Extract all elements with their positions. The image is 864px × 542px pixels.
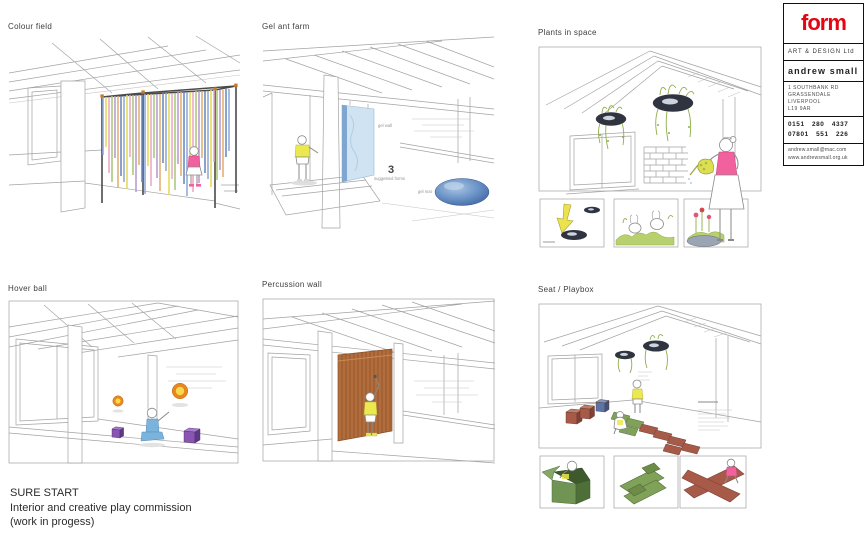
plants-in-space-illustration	[538, 41, 770, 263]
form-logo: form	[784, 4, 863, 43]
gel-wall-label: gel wall	[378, 123, 392, 128]
panel-title: Seat / Playbox	[538, 285, 770, 295]
count-label: 3	[388, 164, 394, 176]
project-caption: SURE START Interior and creative play co…	[10, 486, 192, 530]
phone-block: 0151 280 4337 07801 551 226	[784, 116, 863, 143]
hanging-planters	[615, 335, 669, 373]
address-line: L19 9AR	[788, 106, 859, 113]
tile-path	[611, 412, 700, 455]
colour-field-illustration	[8, 35, 240, 235]
thumbnail-playbox	[540, 456, 604, 508]
panel-percussion-wall: Percussion wall	[262, 280, 498, 467]
address-line: 1 SOUTHBANK RD	[788, 85, 859, 92]
gel-mat-label: gel mat	[418, 189, 433, 194]
panel-title: Percussion wall	[262, 280, 498, 290]
gel-ant-farm-illustration: gel wall 3 suggested forms gel mat	[262, 35, 494, 230]
gel-mat	[435, 179, 489, 206]
watering-can	[688, 159, 713, 184]
address-line: LIVERPOOL	[788, 99, 859, 106]
phone-number: 07801 551 226	[788, 130, 859, 140]
project-subtitle: Interior and creative play commission	[10, 501, 192, 516]
seat-playbox-illustration	[538, 298, 770, 522]
designer-name: andrew small	[784, 60, 863, 81]
child-figure	[291, 136, 318, 186]
suggested-forms-label: suggested forms	[374, 176, 405, 181]
room-sketch	[9, 303, 238, 463]
project-status: (work in progess)	[10, 515, 192, 530]
contact-block: andrew.small@mac.com www.andrewsmall.org…	[784, 143, 863, 165]
child-standing-figure	[632, 380, 643, 413]
gel-wall	[342, 101, 374, 182]
thumbnail-drop	[540, 199, 604, 247]
thumbnail-unfolded-box	[614, 456, 678, 508]
thumbnail-tile-cross	[680, 456, 746, 508]
panel-title: Hover ball	[8, 284, 240, 294]
panel-title: Gel ant farm	[262, 22, 494, 32]
thumbnail-rabbits	[614, 199, 678, 247]
percussion-wall-illustration	[262, 293, 496, 467]
phone-number: 0151 280 4337	[788, 120, 859, 130]
address-line: GRASSENDALE	[788, 92, 859, 99]
percussion-panel	[338, 349, 392, 441]
email-address: andrew.small@mac.com	[788, 147, 859, 155]
logo-card: form ART & DESIGN Ltd andrew small 1 SOU…	[783, 3, 864, 166]
hover-ball-illustration	[8, 297, 240, 465]
address-block: 1 SOUTHBANK RD GRASSENDALE LIVERPOOL L19…	[784, 81, 863, 116]
panel-plants-in-space: Plants in space	[538, 28, 770, 263]
child-sitting-figure	[139, 408, 169, 447]
brick-wall	[644, 147, 688, 183]
logo-subtitle: ART & DESIGN Ltd	[784, 43, 863, 60]
panel-seat-playbox: Seat / Playbox	[538, 285, 770, 522]
panel-hover-ball: Hover ball	[8, 284, 240, 465]
panel-gel-ant-farm: Gel ant farm	[262, 22, 494, 230]
ribbon-canopy	[100, 84, 237, 208]
hanging-planter-small	[596, 106, 626, 149]
project-title: SURE START	[10, 486, 192, 501]
panel-colour-field: Colour field	[8, 22, 240, 235]
panel-title: Colour field	[8, 22, 240, 32]
woman-watering-figure	[688, 137, 744, 241]
ribbons	[103, 89, 229, 196]
hanging-planter-large	[653, 85, 694, 141]
panel-title: Plants in space	[538, 28, 770, 38]
website-url: www.andrewsmall.org.uk	[788, 155, 859, 163]
scene-frame	[9, 301, 238, 463]
